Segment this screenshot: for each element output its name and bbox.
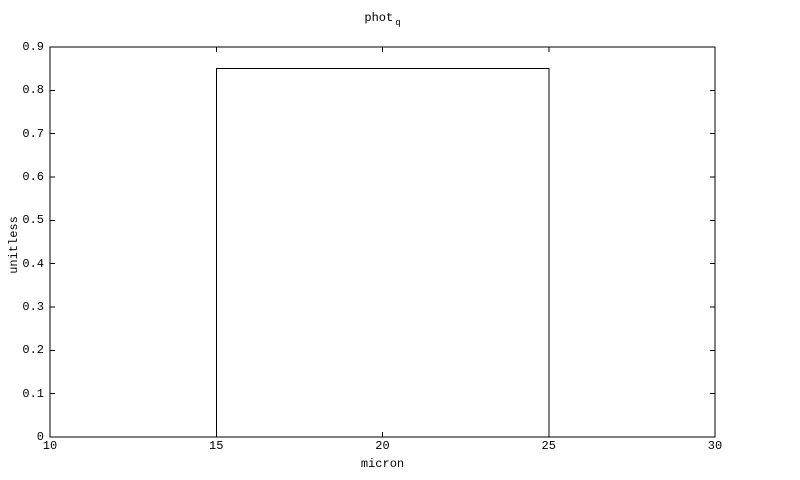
y-tick-label: 0.8: [2, 83, 44, 97]
y-tick-label: 0.2: [2, 343, 44, 357]
y-tick-label: 0.9: [2, 40, 44, 54]
plot-canvas: [0, 0, 800, 480]
y-tick-label: 0.3: [2, 300, 44, 314]
x-tick-label: 30: [693, 439, 737, 453]
y-tick-label: 0: [2, 430, 44, 444]
y-tick-label: 0.7: [2, 127, 44, 141]
data-series-line: [50, 69, 715, 437]
x-tick-label: 25: [527, 439, 571, 453]
y-tick-label: 0.4: [2, 257, 44, 271]
y-tick-label: 0.6: [2, 170, 44, 184]
plot-frame: [50, 47, 715, 437]
x-tick-label: 20: [361, 439, 405, 453]
y-tick-label: 0.5: [2, 213, 44, 227]
chart-title-main: phot: [364, 11, 393, 25]
chart-area: photq micron unitless 101520253000.10.20…: [0, 0, 800, 480]
x-axis-label: micron: [0, 457, 765, 471]
x-tick-label: 15: [194, 439, 238, 453]
chart-title-subscript: q: [395, 18, 400, 28]
y-tick-label: 0.1: [2, 387, 44, 401]
chart-title: photq: [0, 11, 765, 30]
